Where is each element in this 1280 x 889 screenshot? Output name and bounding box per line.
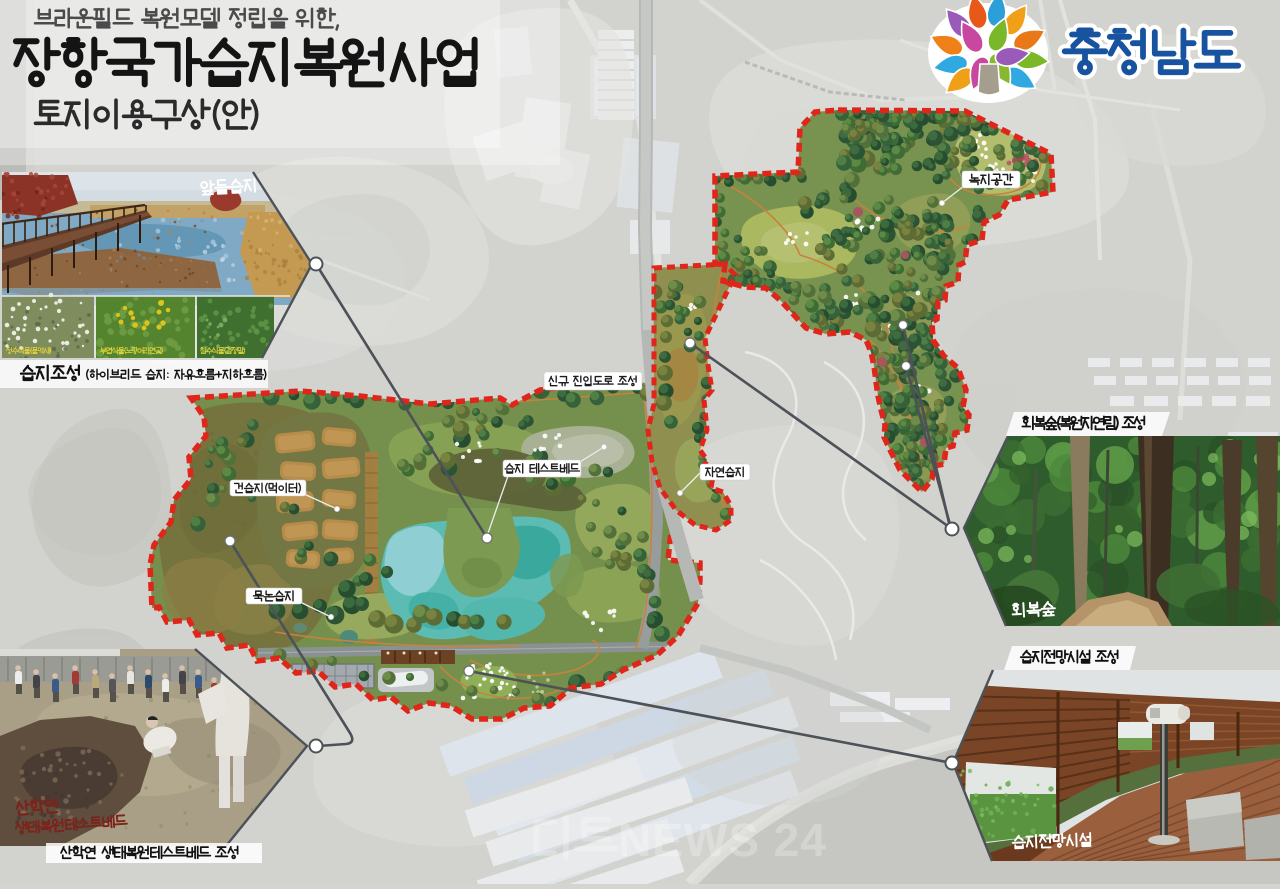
svg-text:NEWS 24: NEWS 24 (618, 814, 827, 866)
